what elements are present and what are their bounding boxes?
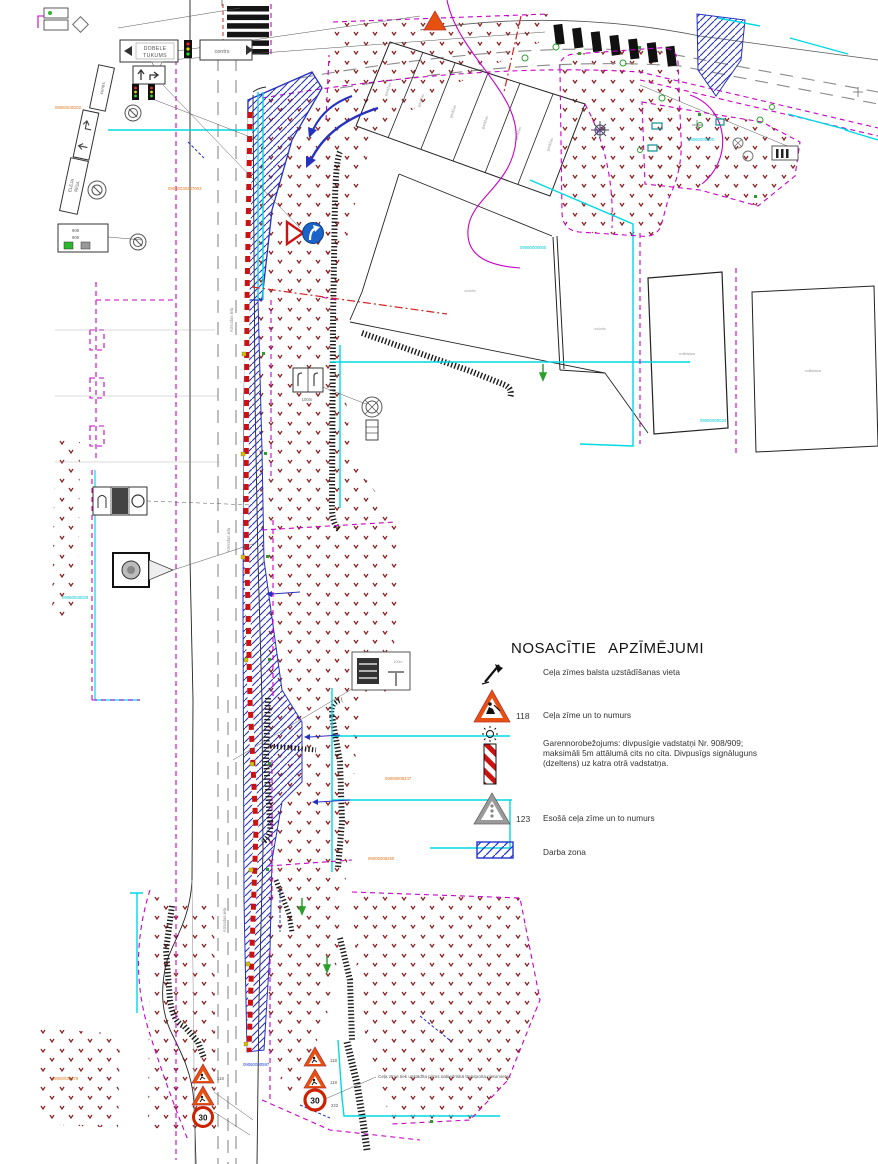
legend-item-text: Ceļa zīmes balsta uzstādīšanas vieta — [543, 667, 680, 677]
small-panel — [44, 20, 68, 30]
info-panel-sign: 100m — [352, 652, 410, 690]
legend-item-text: maksimāli 5m attālumā cits no cita. Divp… — [543, 748, 757, 758]
road-name: Atmodas iela — [229, 307, 234, 332]
small-panel — [44, 8, 68, 18]
cadastral-label: 09008008250 — [368, 856, 395, 861]
building-label: noliktava — [679, 351, 696, 356]
bench-sign — [772, 146, 798, 160]
panel-text-908: 908 — [72, 228, 80, 233]
diamond-sign — [73, 17, 89, 33]
legend-item-delineator-post: Garennorobežojums: divpusīgie vadstatņi … — [482, 726, 757, 784]
road-name: Atmodas iela — [226, 527, 231, 552]
direction-sign-centrs: centrs — [200, 40, 253, 60]
building-label: noliktava — [805, 368, 822, 373]
legend-item-roadworks-sign: 118 Ceļa zīme un to numurs — [474, 690, 631, 722]
sign-number: 118 — [217, 1076, 224, 1081]
panel-text-909: 909 — [72, 235, 80, 240]
garage-label: garāžas — [449, 105, 457, 119]
panel-100m: 100m — [394, 660, 403, 664]
sign-number: 118 — [330, 1080, 337, 1085]
note-text: Ceļa zīme tiek uzstādīta pirms sabiedris… — [378, 1074, 511, 1079]
ground-label: asfalts — [464, 288, 476, 293]
sign-text-tukums: TUKUMS — [143, 53, 167, 59]
legend-item-text: Esošā ceļa zīme un to numurs — [543, 813, 655, 823]
rotated-sign-arrows — [73, 110, 99, 160]
legend-item-number: 118 — [516, 711, 530, 721]
cadastral-label: 09060030207003 — [168, 186, 202, 191]
traffic-light-icon — [148, 84, 155, 100]
green-dot — [48, 11, 52, 15]
legend-item-work-zone: Darba zona — [477, 842, 586, 858]
cadastral-label: 09060040028 — [62, 595, 89, 600]
cadastral-label: 09060000000 — [520, 245, 547, 250]
cadastral-label: 09060000000 — [688, 137, 715, 142]
garage-label: garāžas — [546, 138, 554, 152]
cadastral-label: 09060000597 — [243, 1062, 270, 1067]
legend-item-number: 123 — [516, 814, 530, 824]
sign-text-dobele: DOBELE — [144, 46, 167, 52]
legend-item-text: Ceļa zīme un to numurs — [543, 710, 631, 720]
legend-title: NOSACĪTIE APZĪMĒJUMI — [511, 640, 704, 657]
traffic-light-icon — [184, 40, 192, 58]
cadastral-label: 09008009347 — [385, 776, 412, 781]
bottom-sign-stack-right: 30 118 118 222 — [304, 1047, 339, 1110]
sign-number: 118 — [330, 1058, 337, 1063]
legend-item-text: Darba zona — [543, 847, 586, 857]
legend: NOSACĪTIE APZĪMĒJUMI Ceļa zīmes balsta u… — [474, 640, 757, 858]
lane-direction-sign — [133, 66, 165, 84]
sign-box-left-b — [113, 553, 173, 587]
site-plan-canvas: garāžas garāžas garāžas garāžas garāžas … — [0, 0, 878, 1164]
rotated-sign-eleja-riga: ELEJA RĪGA — [60, 158, 89, 215]
ground-label: asfalts — [594, 326, 606, 331]
legend-item-post: Ceļa zīmes balsta uzstādīšanas vieta — [482, 664, 680, 684]
rotated-sign-centrs: centrs — [90, 65, 115, 111]
label-100m: 100m — [302, 397, 313, 402]
road-name: Atmodas iela — [222, 907, 227, 932]
traffic-scheme-drawing: garāžas garāžas garāžas garāžas garāžas … — [0, 0, 878, 1164]
legend-item-text: Garennorobežojums: divpusīgie vadstatņi … — [543, 738, 743, 748]
legend-item-text: (dzeltens) uz katra otrā vadstatņa. — [543, 758, 668, 768]
direction-sign-dobele-tukums: DOBELE TUKUMS — [120, 40, 178, 62]
cadastral-label: 09060000034 — [700, 418, 727, 423]
legend-item-existing-sign: 123 Esošā ceļa zīme un to numurs — [474, 793, 655, 824]
speed-30: 30 — [310, 1096, 320, 1106]
note-annotation: Ceļa zīme tiek uzstādīta pirms sabiedris… — [378, 1074, 511, 1079]
garage-label: garāžas — [481, 116, 489, 130]
sign-number: 222 — [331, 1103, 339, 1108]
traffic-light-icon — [132, 84, 139, 100]
cadastral-label: 09060030202 — [55, 105, 82, 110]
sign-text-centrs: centrs — [215, 49, 230, 55]
cadastral-label: 09060030179 — [52, 1076, 79, 1081]
signal-panel-908-909: 908 909 — [58, 224, 108, 252]
sign-box-left-a — [93, 487, 147, 515]
keep-right-sign — [303, 223, 324, 244]
speed-30: 30 — [199, 1114, 208, 1123]
